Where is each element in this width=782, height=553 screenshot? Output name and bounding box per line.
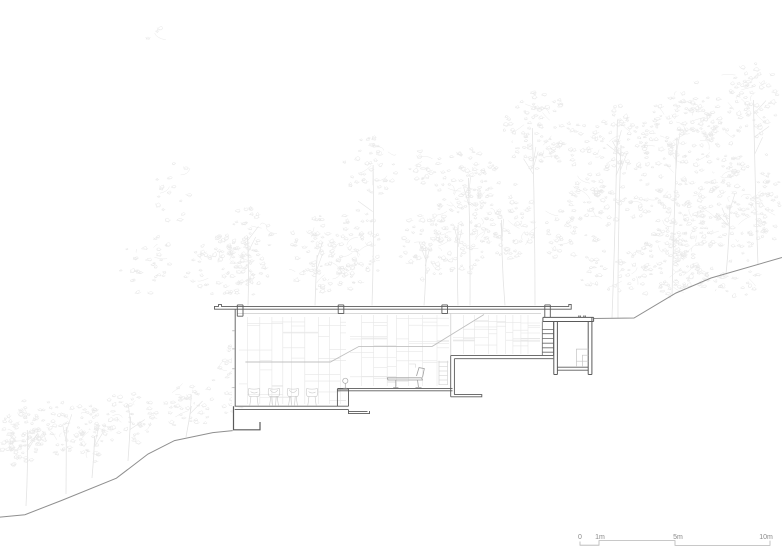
svg-text:5m: 5m	[673, 534, 683, 541]
svg-text:10m: 10m	[759, 534, 773, 541]
svg-text:1m: 1m	[595, 534, 605, 541]
svg-text:0: 0	[578, 534, 582, 541]
